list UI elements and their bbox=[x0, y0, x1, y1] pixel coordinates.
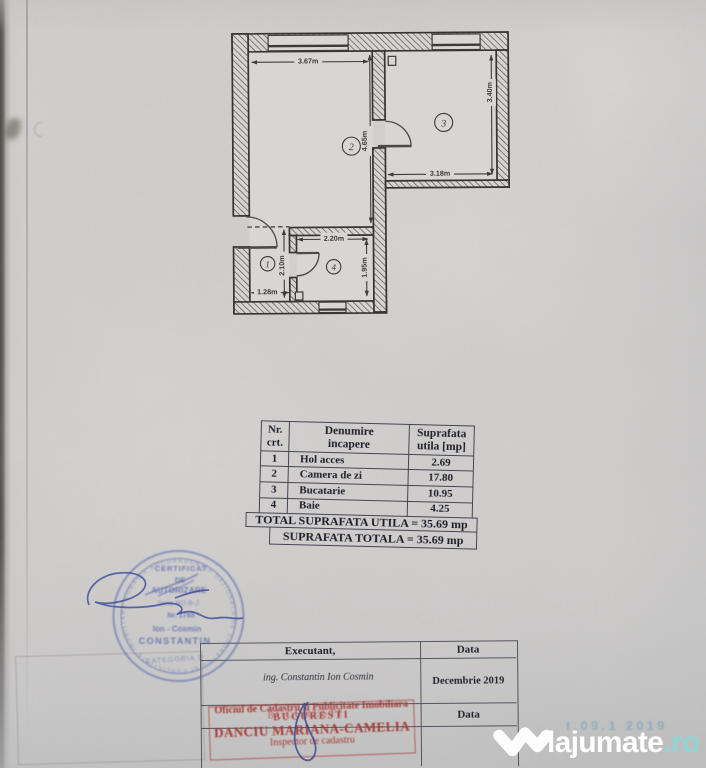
svg-text:1.95m: 1.95m bbox=[360, 257, 369, 277]
svg-text:3.67m: 3.67m bbox=[298, 56, 318, 65]
svg-text:1: 1 bbox=[265, 259, 270, 269]
svg-text:4.65m: 4.65m bbox=[360, 131, 369, 151]
svg-text:2: 2 bbox=[349, 142, 354, 153]
svg-text:1.28m: 1.28m bbox=[257, 287, 277, 296]
svg-text:3.40m: 3.40m bbox=[485, 82, 494, 102]
svg-text:3.18m: 3.18m bbox=[430, 169, 450, 178]
svg-text:4: 4 bbox=[331, 262, 336, 272]
svg-text:3: 3 bbox=[440, 118, 446, 129]
svg-text:CATEGORIA D: CATEGORIA D bbox=[146, 654, 205, 665]
svg-text:2.20m: 2.20m bbox=[324, 234, 344, 243]
svg-text:2.10m: 2.10m bbox=[277, 255, 286, 275]
